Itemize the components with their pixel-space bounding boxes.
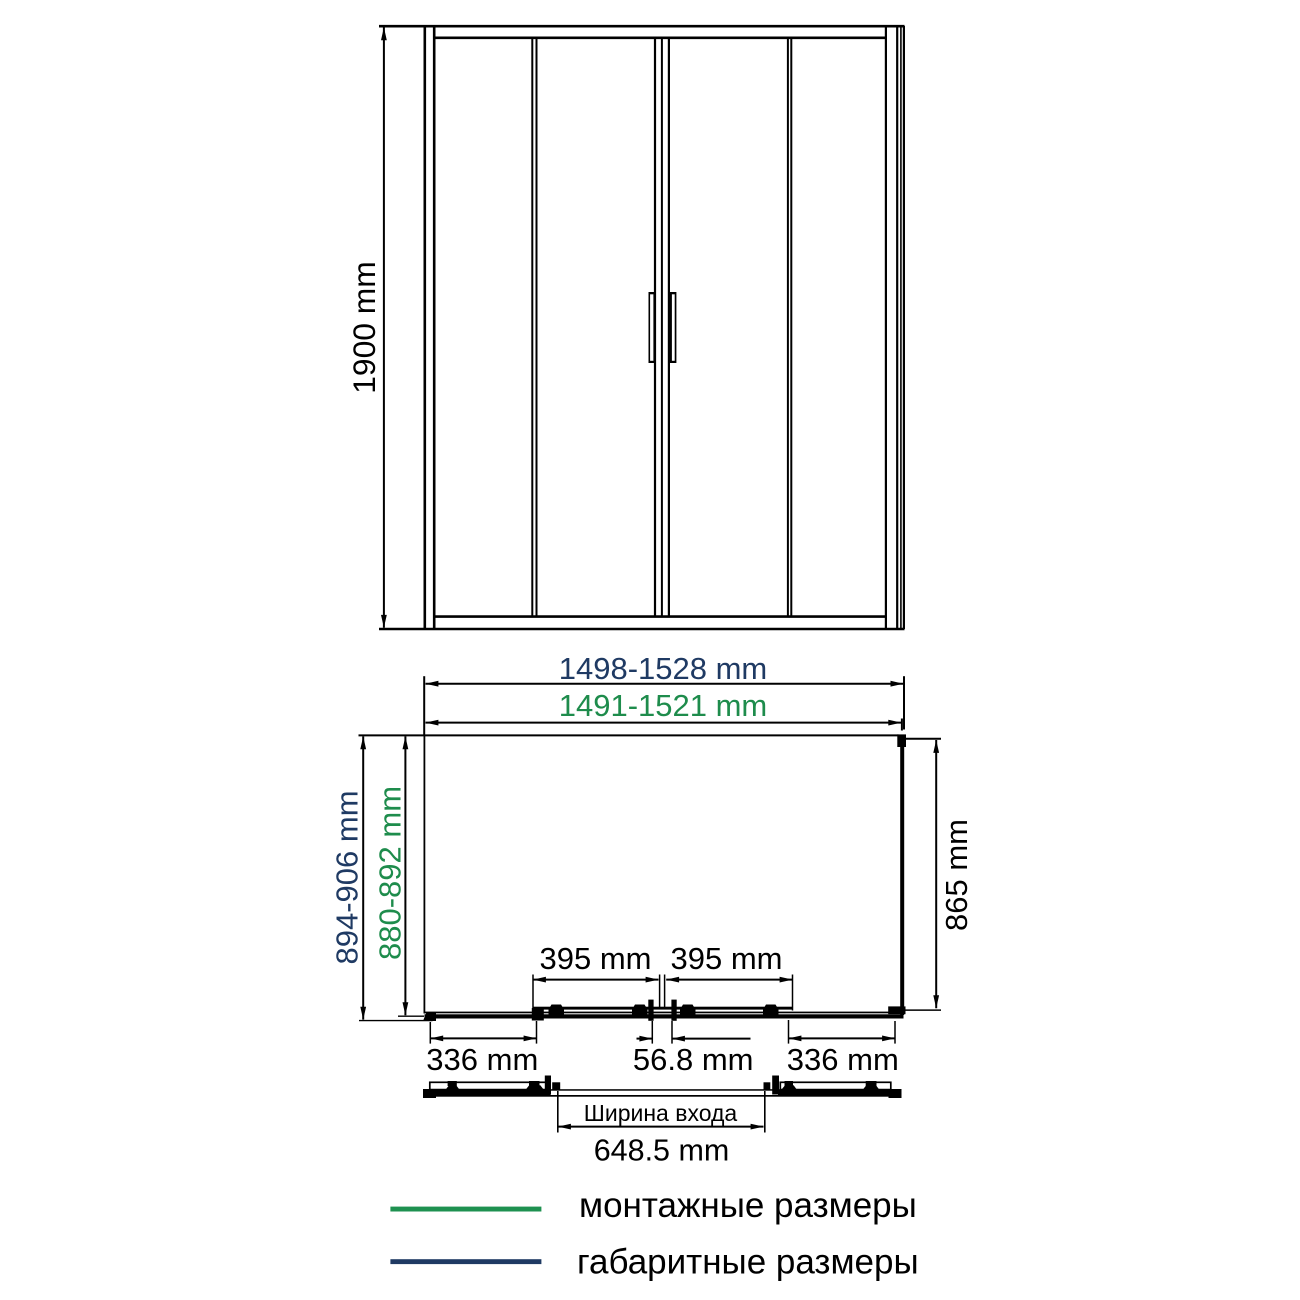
svg-text:1498-1528 mm: 1498-1528 mm: [559, 651, 768, 686]
svg-text:894-906 mm: 894-906 mm: [330, 790, 365, 964]
svg-text:Ширина входа: Ширина входа: [584, 1100, 738, 1126]
svg-text:габаритные размеры: габаритные размеры: [577, 1243, 919, 1282]
svg-text:336 mm: 336 mm: [426, 1042, 538, 1077]
svg-text:1491-1521 mm: 1491-1521 mm: [559, 688, 768, 723]
svg-text:395 mm: 395 mm: [671, 941, 783, 976]
svg-text:1900 mm: 1900 mm: [346, 261, 382, 394]
svg-text:880-892 mm: 880-892 mm: [373, 786, 408, 960]
svg-text:865 mm: 865 mm: [939, 819, 974, 931]
svg-text:648.5 mm: 648.5 mm: [594, 1134, 730, 1168]
svg-text:монтажные размеры: монтажные размеры: [579, 1186, 917, 1225]
svg-text:395 mm: 395 mm: [540, 941, 652, 976]
svg-text:336 mm: 336 mm: [787, 1042, 899, 1077]
svg-text:56.8 mm: 56.8 mm: [633, 1042, 754, 1077]
